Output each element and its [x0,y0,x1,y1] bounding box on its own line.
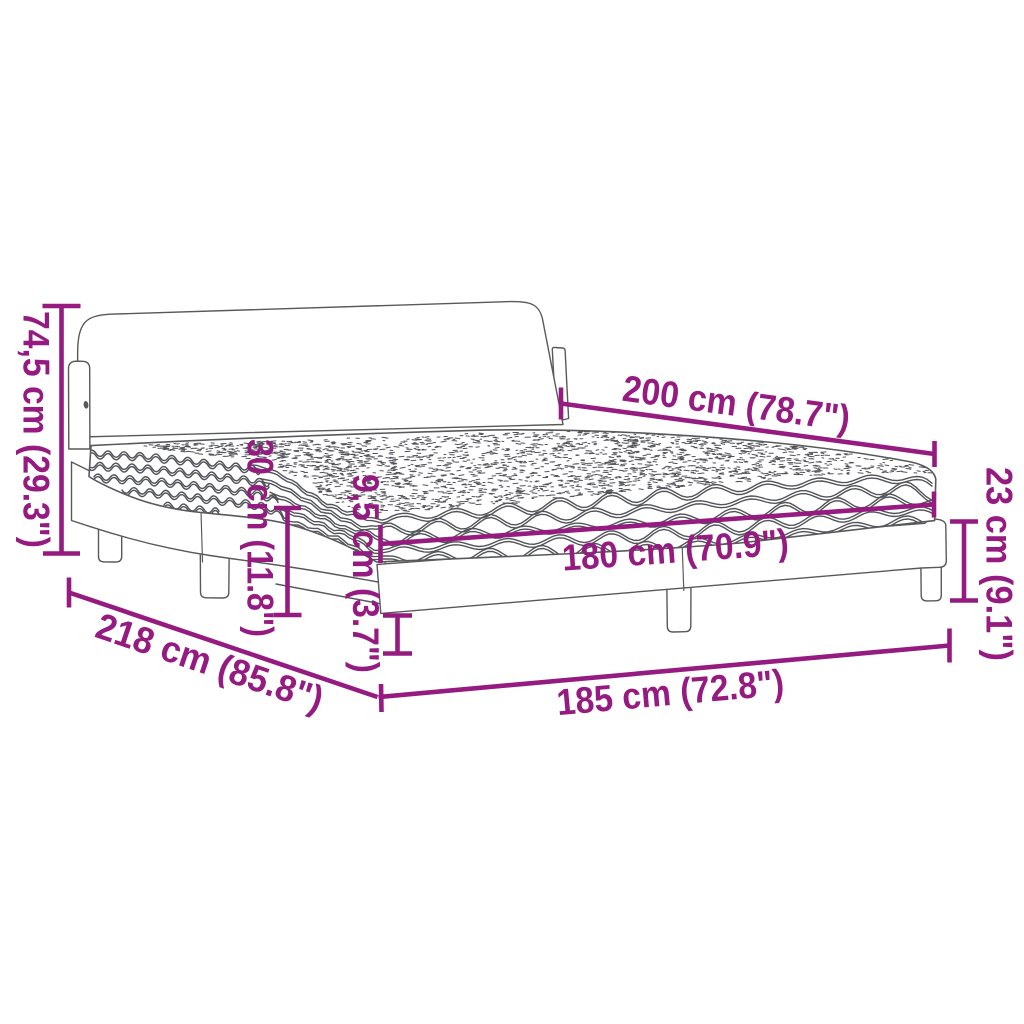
svg-text:74,5 cm (29.3"): 74,5 cm (29.3") [16,311,57,548]
svg-text:30 cm (11.8"): 30 cm (11.8") [240,439,281,637]
svg-text:23 cm (9.1"): 23 cm (9.1") [979,467,1020,661]
svg-text:9,5 cm (3.7"): 9,5 cm (3.7") [345,474,386,673]
svg-text:185 cm (72.8"): 185 cm (72.8") [555,662,786,723]
svg-text:218 cm (85.8"): 218 cm (85.8") [91,605,329,720]
